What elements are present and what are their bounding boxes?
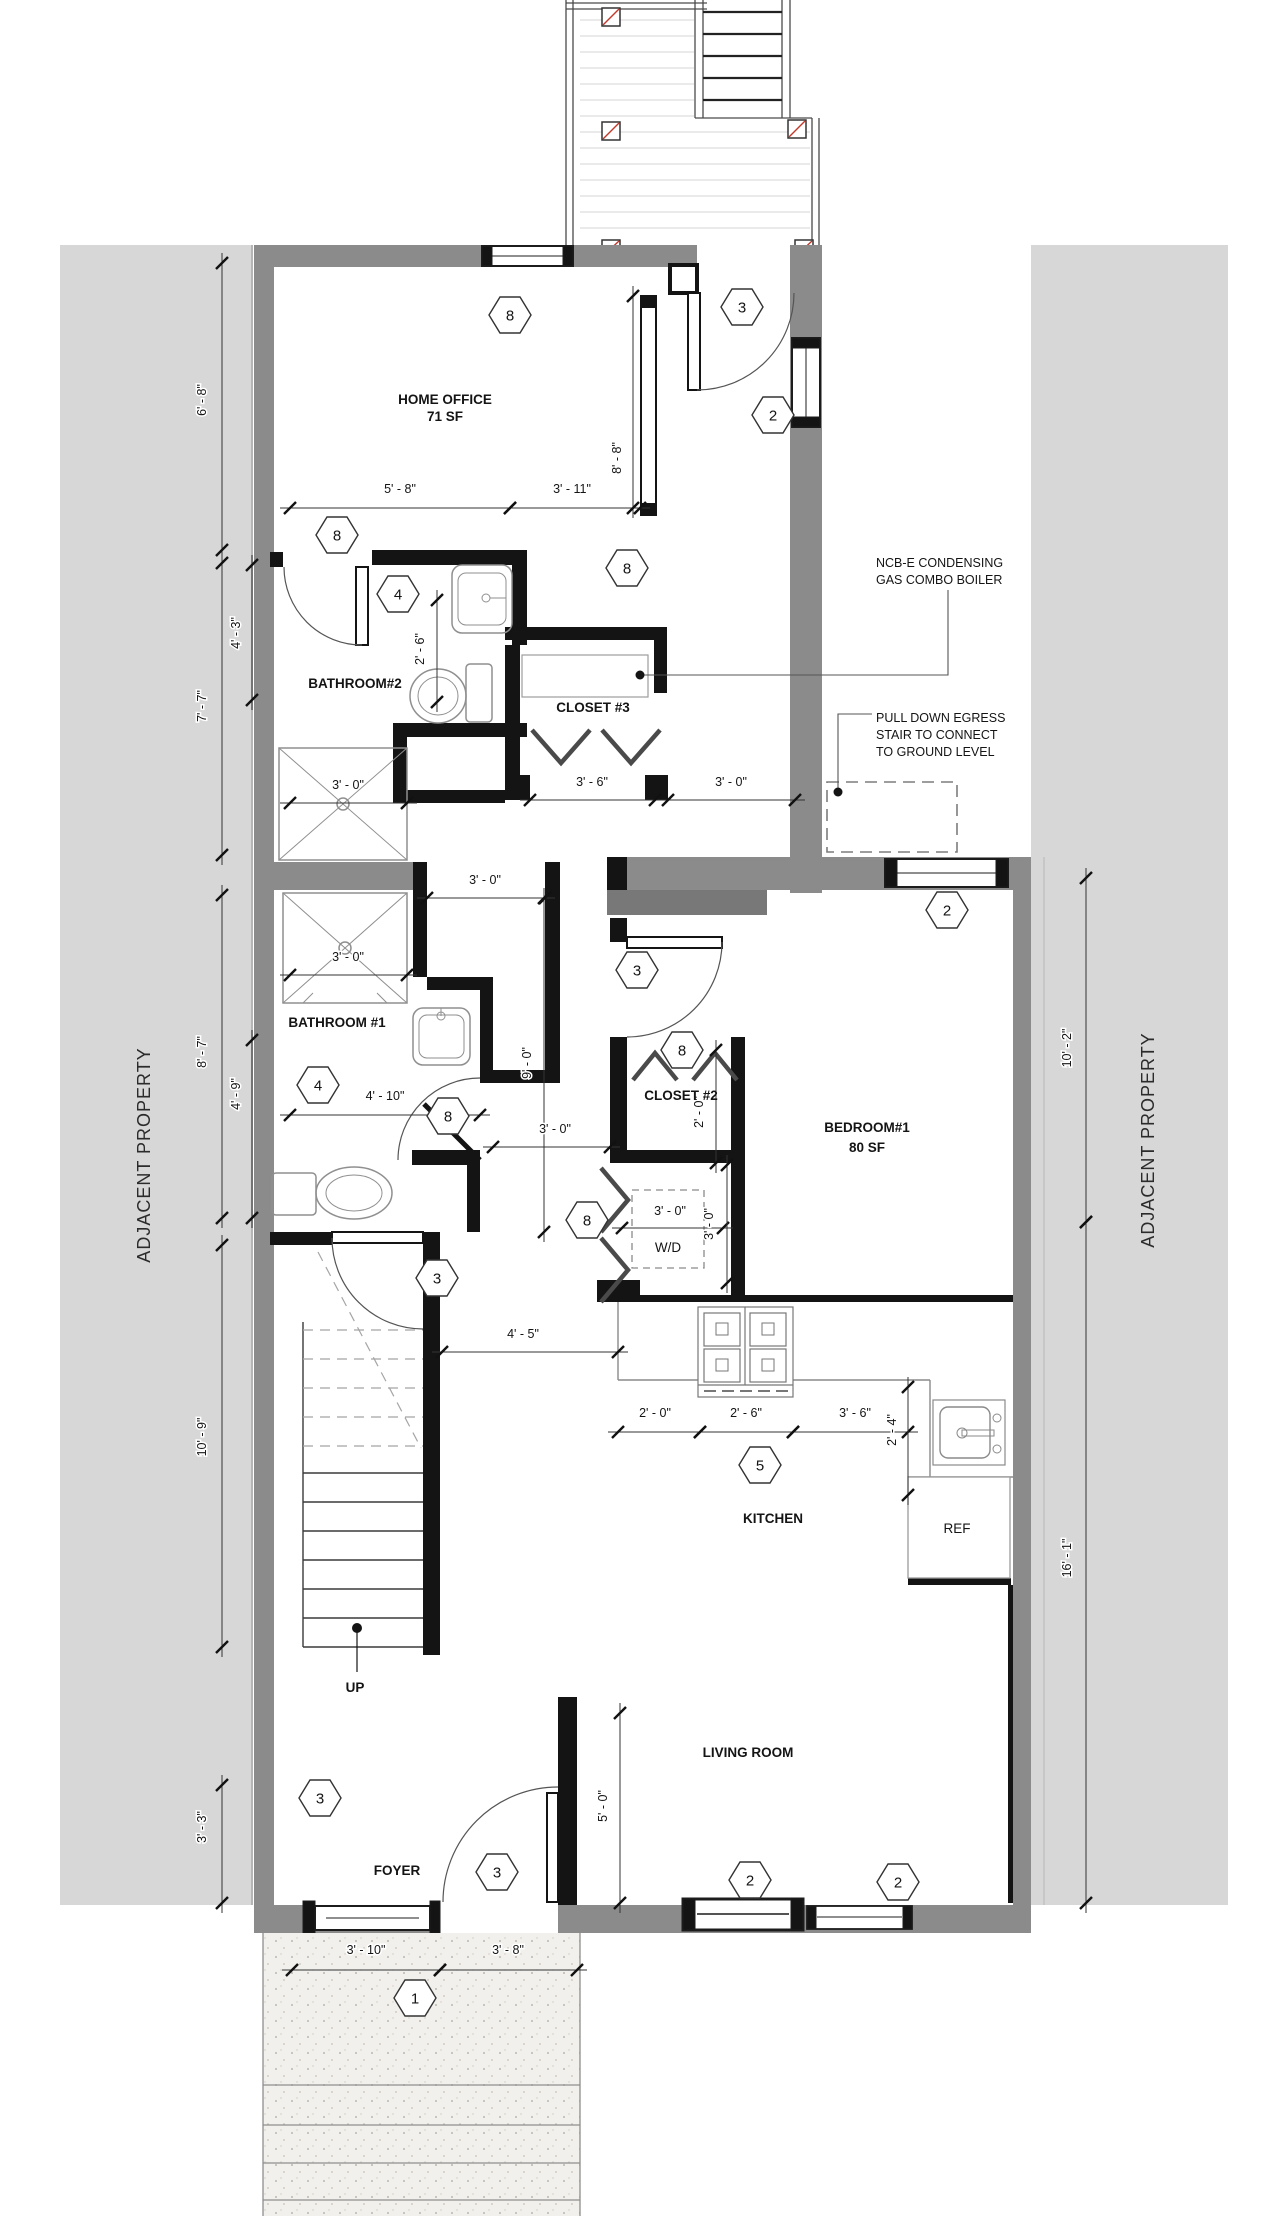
label-ref: REF — [944, 1521, 971, 1536]
bifold-closet2-right — [693, 1053, 737, 1080]
dimension: 5' - 8" — [280, 482, 520, 514]
dimension-text: 2' - 6" — [730, 1406, 762, 1420]
label-closet2: CLOSET #2 — [644, 1088, 718, 1103]
window-upper-right — [792, 338, 820, 427]
dimension-text: 3' - 0" — [539, 1122, 571, 1136]
dimension-text: 4' - 5" — [507, 1327, 539, 1341]
callout-number: 2 — [769, 408, 777, 425]
callout-hexagon: 3 — [299, 1780, 341, 1816]
notes: NCB-E CONDENSING GAS COMBO BOILER PULL D… — [876, 556, 1005, 759]
window-bedroom — [885, 859, 1008, 887]
dimension-text: 3' - 11" — [553, 482, 591, 496]
callout-number: 8 — [678, 1043, 686, 1060]
toilet-bathroom2 — [410, 664, 492, 723]
kitchen-counter — [618, 1302, 1013, 1477]
callout-number: 3 — [738, 300, 746, 317]
callout-hexagon: 3 — [616, 952, 658, 988]
label-bathroom2: BATHROOM#2 — [308, 676, 402, 691]
dimension-text: 3' - 0" — [332, 950, 364, 964]
dimension: 3' - 0" — [280, 950, 417, 981]
note-egress-1: PULL DOWN EGRESS — [876, 711, 1005, 725]
callout-hexagon: 8 — [316, 517, 358, 553]
property-label-right: ADJACENT PROPERTY — [1138, 1032, 1158, 1247]
dimension-text: 3' - 8" — [492, 1943, 524, 1957]
callout-number: 8 — [333, 528, 341, 545]
label-foyer: FOYER — [374, 1863, 421, 1878]
callout-number: 3 — [633, 963, 641, 980]
floor-plan-sheet: ADJACENT PROPERTY ADJACENT PROPERTY — [0, 0, 1281, 2216]
callout-number: 2 — [943, 903, 951, 920]
door-jamb-top — [670, 265, 697, 293]
dimension-text: 16' - 1" — [1060, 1539, 1074, 1578]
window-foyer — [303, 1901, 440, 1933]
dimension-text: 6' - 8" — [195, 384, 209, 416]
egress-leader-dot — [834, 788, 843, 797]
shower-bathroom2 — [279, 748, 407, 860]
dimension: 3' - 6" — [520, 775, 665, 806]
dimension-text: 8' - 7" — [195, 1036, 209, 1068]
dimension-text: 5' - 0" — [596, 1790, 610, 1822]
closet3-shelf — [522, 655, 648, 697]
callout-number: 5 — [756, 1458, 764, 1475]
callout-hexagon: 4 — [297, 1067, 339, 1103]
dimension: 2' - 0" — [608, 1406, 710, 1438]
callout-hexagon: 8 — [427, 1098, 469, 1134]
dimension-text: 4' - 9" — [229, 1078, 243, 1110]
label-home-office-area: 71 SF — [427, 409, 463, 424]
dimension-text: 3' - 6" — [839, 1406, 871, 1420]
egress-leader — [838, 714, 872, 790]
label-bedroom1-area: 80 SF — [849, 1140, 885, 1155]
dimension: 8' - 8" — [610, 286, 639, 518]
door-leaf-stair-hall — [332, 1232, 423, 1243]
callout-number: 3 — [316, 1791, 324, 1808]
dimension-text: 5' - 8" — [384, 482, 416, 496]
bifold-closet3-left — [532, 730, 590, 763]
note-boiler-2: GAS COMBO BOILER — [876, 573, 1002, 587]
dimension-text: 10' - 2" — [1060, 1029, 1074, 1068]
dimension-text: 3' - 0" — [715, 775, 747, 789]
dimension: 3' - 0" — [483, 1122, 620, 1153]
label-wd: W/D — [655, 1240, 681, 1255]
dimension: 3' - 0" — [417, 873, 555, 904]
front-walkway — [263, 1933, 580, 2216]
dimension: 3' - 11" — [500, 482, 650, 514]
dimension: 2' - 6" — [413, 590, 443, 712]
boiler-leader-dot — [636, 671, 645, 680]
dimension-text: 3' - 0" — [469, 873, 501, 887]
dimension-text: 8' - 8" — [610, 442, 624, 474]
adjacent-property-left: ADJACENT PROPERTY — [60, 245, 252, 1905]
dimension-text: 2' - 4" — [885, 1414, 899, 1446]
door-leaf-deck — [688, 293, 700, 390]
callout-number: 8 — [506, 308, 514, 325]
home-office-east-wall — [641, 296, 656, 515]
dimension-text: 2' - 0" — [639, 1406, 671, 1420]
pulldown-stair-dashed — [827, 782, 957, 852]
callout-number: 3 — [493, 1865, 501, 1882]
sink-bathroom1 — [413, 1008, 470, 1065]
dimension-text: 4' - 10" — [366, 1089, 405, 1103]
range-stove — [698, 1307, 793, 1397]
bifold-closet3-right — [602, 730, 660, 763]
washer-dryer — [632, 1190, 704, 1268]
sink-bathroom2 — [452, 565, 512, 633]
callout-number: 4 — [314, 1078, 322, 1095]
callout-hexagon: 3 — [416, 1260, 458, 1296]
door-arc-bathroom2 — [284, 567, 362, 645]
floor-plan-drawing: ADJACENT PROPERTY ADJACENT PROPERTY — [0, 0, 1281, 2216]
kitchen-sink — [933, 1400, 1005, 1465]
dimension-text: 4' - 3" — [229, 617, 243, 649]
window-home-office — [482, 246, 573, 266]
callout-number: 8 — [444, 1109, 452, 1126]
dimension-text: 9' - 0" — [520, 1047, 534, 1079]
callout-number: 2 — [746, 1873, 754, 1890]
deck — [566, 0, 819, 257]
label-up: UP — [346, 1680, 365, 1695]
interior-stairs — [303, 1252, 423, 1672]
callout-hexagon: 4 — [377, 576, 419, 612]
callout-number: 8 — [583, 1213, 591, 1230]
label-closet3: CLOSET #3 — [556, 700, 630, 715]
callout-number: 4 — [394, 587, 402, 604]
callout-number: 8 — [623, 561, 631, 578]
label-home-office: HOME OFFICE — [398, 392, 492, 407]
door-leaf-bedroom — [627, 937, 722, 948]
dimension-text: 10' - 9" — [195, 1418, 209, 1457]
callout-hexagon: 8 — [566, 1202, 608, 1238]
label-kitchen: KITCHEN — [743, 1511, 803, 1526]
dimension-text: 2' - 6" — [413, 633, 427, 665]
callout-hexagon: 2 — [752, 397, 794, 433]
note-egress-2: STAIR TO CONNECT — [876, 728, 998, 742]
toilet-bathroom1 — [272, 1167, 392, 1219]
note-boiler-1: NCB-E CONDENSING — [876, 556, 1003, 570]
callout-number: 3 — [433, 1271, 441, 1288]
callout-hexagon: 8 — [661, 1032, 703, 1068]
callout-number: 2 — [894, 1875, 902, 1892]
callout-hexagon: 2 — [729, 1862, 771, 1898]
dimension-text: 3' - 6" — [576, 775, 608, 789]
label-living-room: LIVING ROOM — [703, 1745, 794, 1760]
dimension-text: 3' - 0" — [654, 1204, 686, 1218]
doors — [284, 265, 794, 1902]
dimension-text: 3' - 0" — [332, 778, 364, 792]
dimension: 3' - 0" — [658, 775, 805, 806]
property-label-left: ADJACENT PROPERTY — [134, 1047, 154, 1262]
door-arc-stair-hall — [332, 1238, 423, 1329]
dimension-text: 3' - 3" — [195, 1811, 209, 1843]
label-bathroom1: BATHROOM #1 — [288, 1015, 386, 1030]
room-labels: HOME OFFICE 71 SF BATHROOM#2 CLOSET #3 B… — [288, 392, 970, 1878]
dimension-text: 3' - 10" — [347, 1943, 386, 1957]
callout-hexagon: 5 — [739, 1447, 781, 1483]
callout-hexagon: 3 — [721, 289, 763, 325]
shower-bathroom1 — [283, 893, 407, 1003]
dimension-text: 3' - 0" — [702, 1208, 716, 1240]
callout-hexagon: 2 — [877, 1864, 919, 1900]
callout-hexagon: 3 — [476, 1854, 518, 1890]
label-bedroom1: BEDROOM#1 — [824, 1120, 910, 1135]
door-leaf-bathroom2 — [356, 567, 368, 645]
note-egress-3: TO GROUND LEVEL — [876, 745, 995, 759]
callout-hexagon: 2 — [926, 892, 968, 928]
adjacent-property-right: ADJACENT PROPERTY — [1031, 245, 1228, 1905]
callout-number: 1 — [411, 1991, 419, 2008]
door-leaf-front — [547, 1793, 558, 1902]
window-living-room-1 — [683, 1899, 803, 1930]
dimension: 4' - 5" — [432, 1327, 628, 1358]
window-living-room-2 — [807, 1906, 912, 1929]
dimension: 2' - 6" — [690, 1406, 803, 1438]
dimension-text: 7' - 7" — [195, 690, 209, 722]
callout-hexagon: 8 — [606, 550, 648, 586]
callout-hexagon: 8 — [489, 297, 531, 333]
dimension: 5' - 0" — [596, 1703, 626, 1913]
